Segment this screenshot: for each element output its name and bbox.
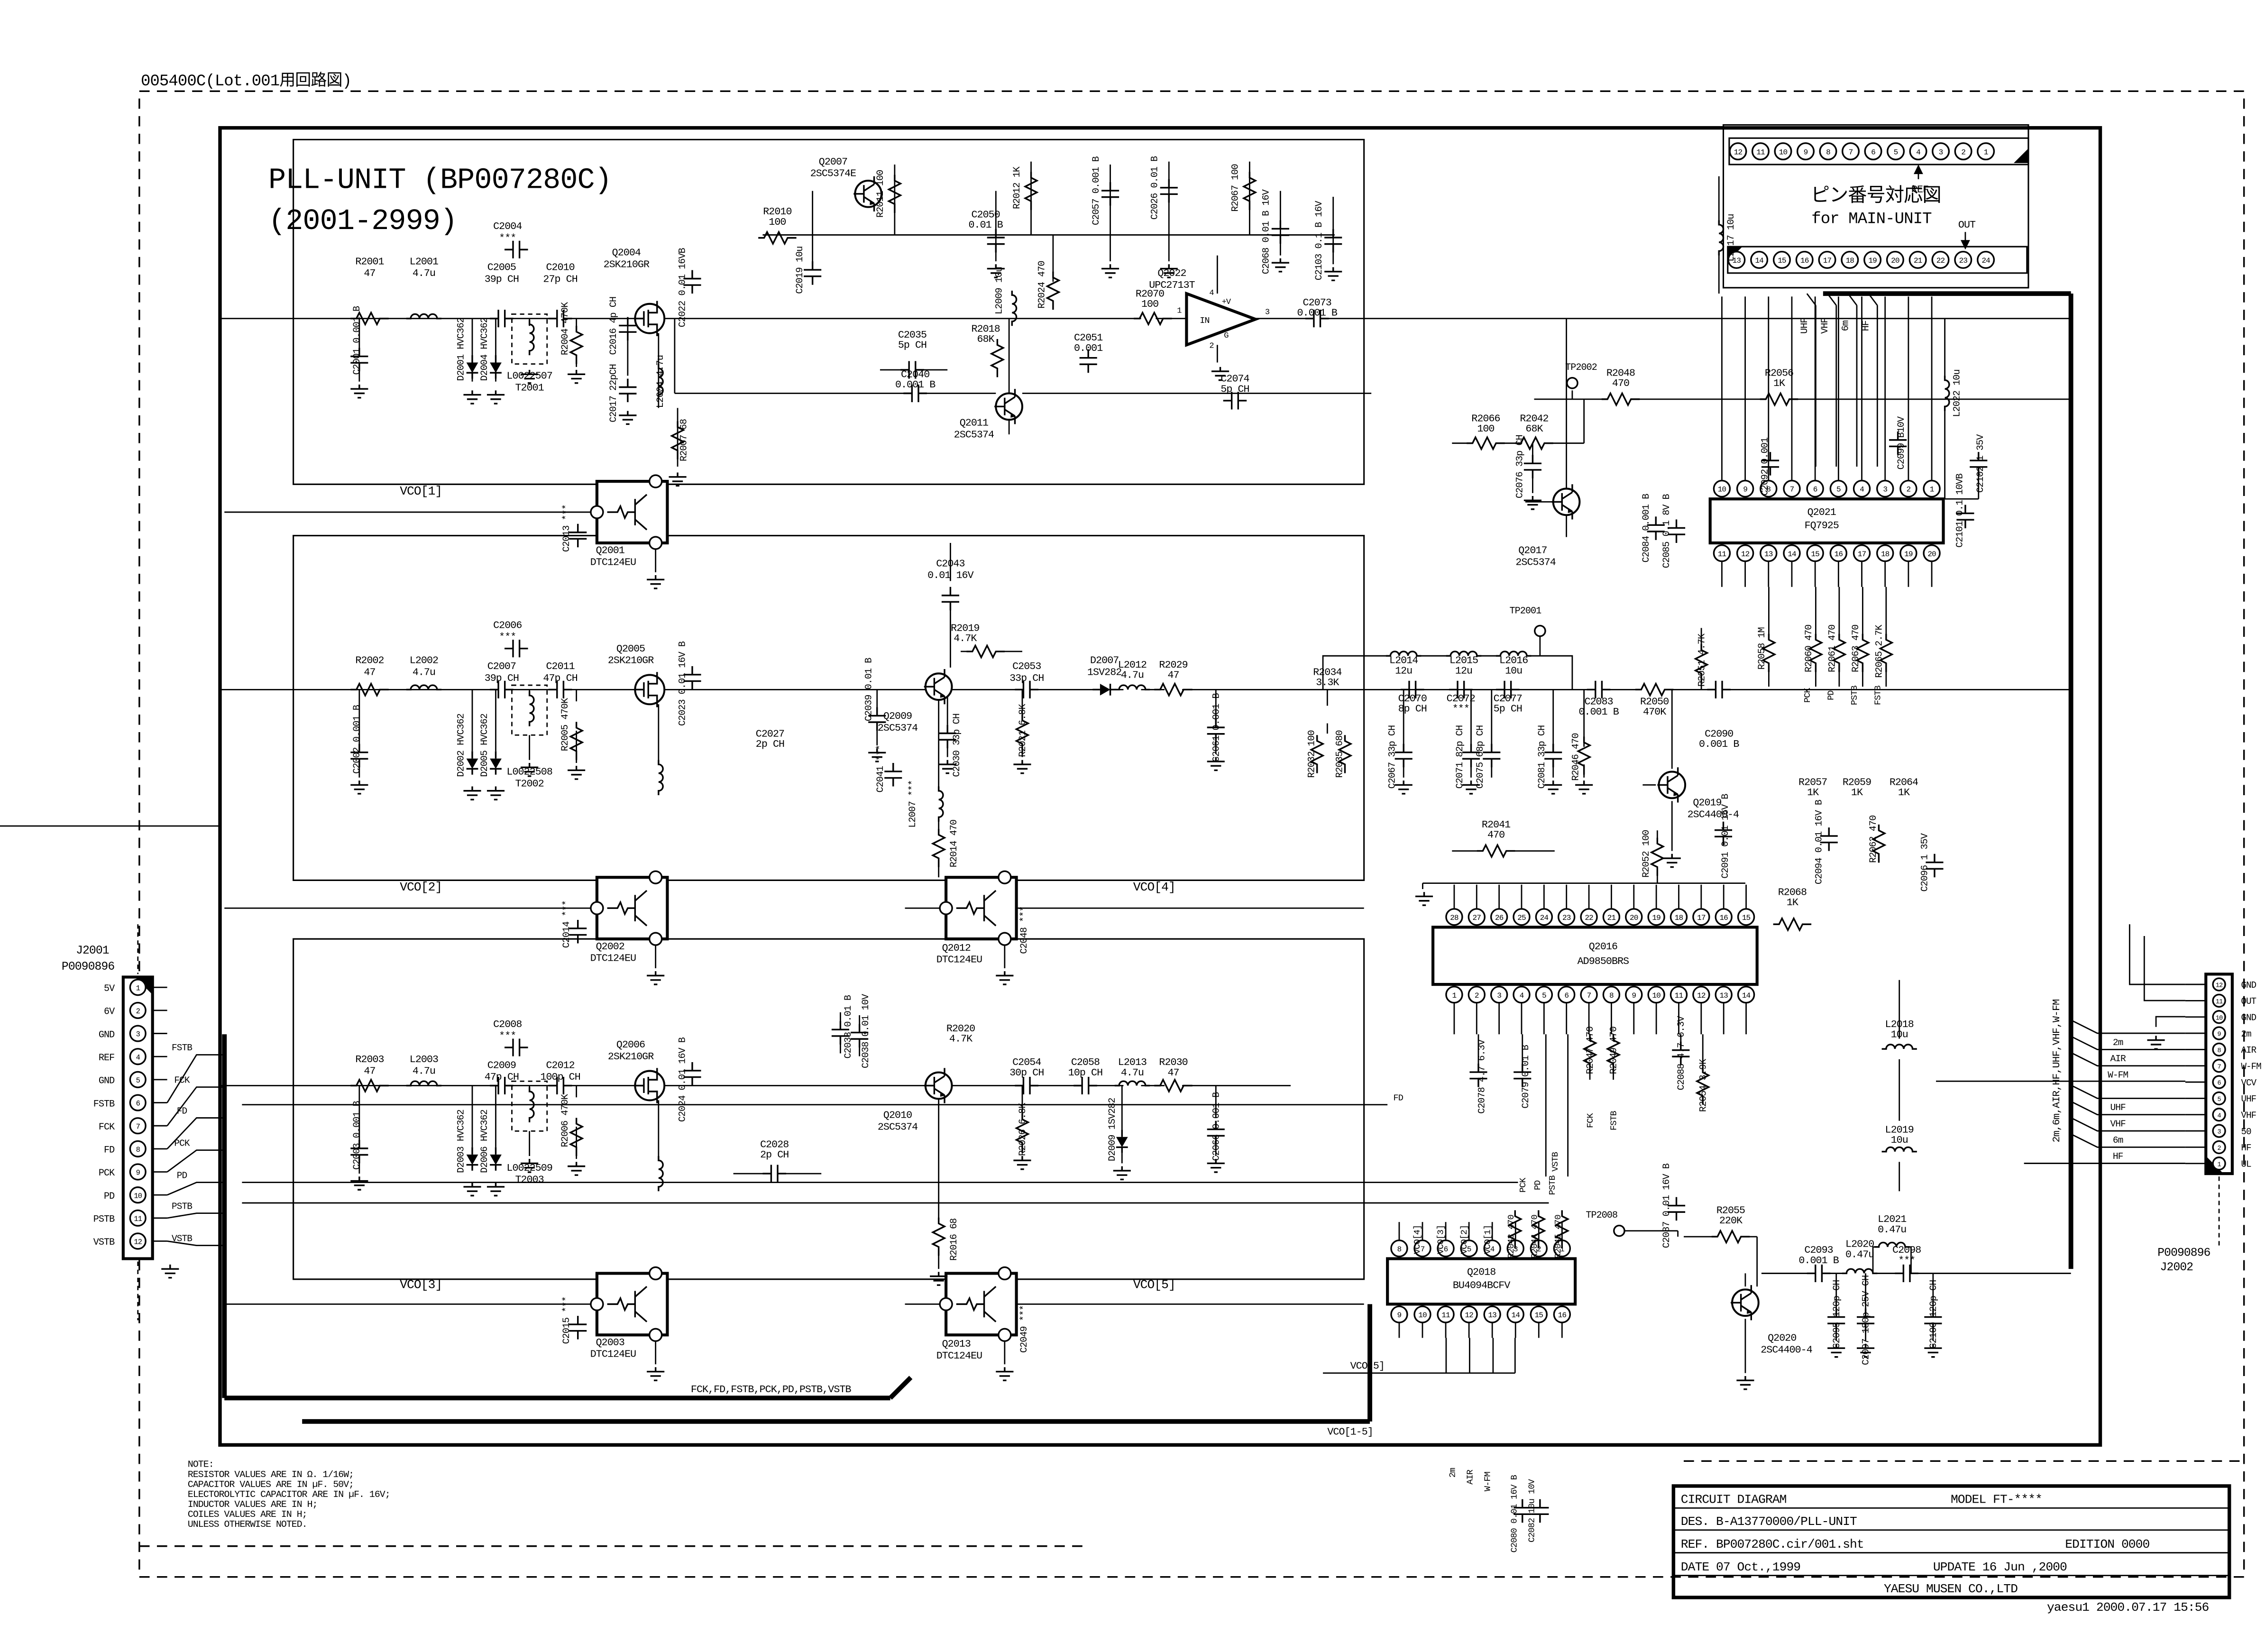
component-label: C2075 68p CH [1475, 725, 1486, 789]
component-label: 47 [364, 267, 375, 279]
pinmap-pin-number: 4 [1916, 148, 1920, 156]
ic-pin-number: 11 [1441, 1311, 1450, 1320]
component-label: 2 [1209, 342, 1213, 351]
component-label: R2021 6.8K [1018, 703, 1028, 757]
gnd-symbol [350, 1176, 368, 1190]
res-symbol [966, 646, 1004, 658]
ic-pin-number: 12 [1741, 550, 1750, 559]
component-label: C2033 0.01 B [843, 995, 854, 1058]
ind-symbol [1842, 1269, 1877, 1273]
connector-pin-label: W-FM [2241, 1062, 2261, 1072]
component-label: HF [1861, 321, 1872, 331]
component-label: Q2010 [883, 1110, 912, 1121]
ic-pin-number: 11 [1675, 991, 1683, 1000]
component-label: C2017 22pCH [608, 364, 619, 422]
component-label: PD [1533, 1180, 1543, 1190]
component-label: C2103 0.1 B 16V [1314, 201, 1325, 280]
component-label: 2m [1448, 1468, 1458, 1478]
component-label: VCO[1] [400, 484, 442, 498]
gnd-symbol [647, 1367, 664, 1380]
dtc-transistor-layer [591, 475, 1017, 1341]
component-label: C2067 33p CH [1387, 725, 1398, 789]
ic-pin-number: 14 [1511, 1311, 1520, 1320]
ic-pin-number: 7 [1790, 486, 1794, 494]
component-label: W-FM [1483, 1472, 1493, 1491]
component-label: 4.7u [1121, 1067, 1144, 1079]
connector-pin-label: UL [2241, 1159, 2251, 1170]
component-label: Q2002 [596, 941, 624, 953]
component-label: 39p CH [485, 672, 519, 684]
dio-symbol [467, 751, 478, 774]
component-label: 470 [1487, 829, 1505, 841]
component-label: C2014 *** [561, 900, 572, 948]
gnd-symbol [487, 786, 505, 799]
component-label: *** [1452, 703, 1469, 715]
gnd-symbol [1101, 264, 1119, 277]
component-label: 1K [1898, 787, 1910, 798]
ic-pin-number: 16 [1835, 550, 1843, 559]
component-label: TP2008 [1586, 1210, 1617, 1221]
pinmap-pin-number: 15 [1778, 257, 1786, 265]
connector-pin-label: 50 [2241, 1127, 2251, 1137]
component-label: 12u [1395, 665, 1412, 677]
component-label: 0.001 [1074, 342, 1102, 354]
ic-pin-number: 15 [1742, 914, 1751, 922]
component-label: C2022 0.01 16VB [678, 248, 688, 327]
component-label: R2065 2.7K [1874, 624, 1885, 678]
dtc124eu-block [940, 871, 1016, 945]
pinmap-pin-number: 11 [1756, 148, 1765, 156]
pinmap-pin-number: 22 [1936, 257, 1945, 265]
connector-pin-label: VHF [2241, 1111, 2256, 1121]
pinmap-pin-number: 23 [1959, 257, 1968, 265]
component-label: L2004 4.7u [655, 355, 666, 408]
component-label: R2051 4.7K [1697, 633, 1707, 687]
band-wire-label: 2m [2113, 1037, 2123, 1048]
dio-symbol [467, 1147, 478, 1170]
ic-pin-number: 6 [1564, 991, 1569, 1000]
component-label: Q2017 [1518, 545, 1547, 557]
component-label: L0022507 [506, 370, 552, 382]
component-label: C2010 [546, 262, 574, 274]
component-label: C2013 *** [561, 505, 572, 552]
connector-pin-label: GND [2241, 1013, 2256, 1023]
component-label: 2SK210GR [604, 258, 650, 270]
component-label: 100p CH [540, 1071, 580, 1083]
gnd-symbol [1113, 1166, 1131, 1180]
component-label: C2076 33p CH [1515, 435, 1526, 498]
component-label: C2039 0.01 B [863, 658, 874, 721]
component-label: R2032 100 [1307, 730, 1318, 778]
res-symbol [1047, 272, 1059, 310]
dtc124eu-block [940, 1267, 1016, 1341]
schematic-page: 005400C(Lot.001用回路図) PLL-UNIT (BP007280C… [0, 0, 2266, 1652]
component-label: Q2001 [596, 545, 624, 557]
component-label: 220K [1719, 1215, 1743, 1227]
component-label: R2058 1M [1757, 627, 1768, 670]
connector-pin-number: 10 [134, 1192, 142, 1200]
cap-symbol [1524, 455, 1541, 478]
component-label: 4.7u [413, 666, 435, 678]
gnd-symbol [647, 575, 664, 588]
ic-pin-number: 14 [1742, 991, 1751, 1000]
gnd-symbol [161, 1265, 179, 1278]
component-label: R2044 470 [1530, 1215, 1540, 1258]
connector-pin-label: HF [2241, 1143, 2251, 1153]
ic-pin-number: 3 [1497, 991, 1501, 1000]
ref-arrow-label: REF [1911, 184, 1928, 196]
connector-j2001: J2001P009089615V26V3GND4REF5GND6FSTB7FCK… [62, 944, 224, 1258]
component-label: 47p CH [485, 1071, 519, 1083]
component-label: 27p CH [543, 273, 577, 285]
component-label: FCK [1586, 1113, 1596, 1128]
gnd-symbol [1013, 1156, 1031, 1169]
component-label: C2008 [493, 1019, 522, 1030]
connector-pin-label: FCK [99, 1122, 115, 1133]
pinmap-pin-number: 1 [1984, 148, 1988, 156]
note-line: INDUCTOR VALUES ARE IN H; [188, 1499, 318, 1510]
pinmap-pin-number: 6 [1871, 148, 1875, 156]
ic-pin-number: 15 [1535, 1311, 1543, 1320]
connector-pin-number: 9 [136, 1169, 140, 1177]
cap-symbol [884, 763, 902, 786]
bus-wire-label: PSTB [172, 1201, 192, 1211]
ic-pin-number: 5 [1542, 991, 1546, 1000]
bus-wire-label: FCK [174, 1075, 190, 1085]
ic-pin-number: 10 [1718, 486, 1726, 494]
ic-pin-number: 5 [1836, 486, 1841, 494]
model: MODEL FT-**** [1951, 1493, 2042, 1507]
notes-block: NOTE: RESISTOR VALUES ARE IN Ω. 1/16W; C… [188, 1459, 390, 1530]
gnd-symbol [463, 390, 481, 404]
component-label: C2096 1 35V [1919, 833, 1930, 891]
component-label: 47 [1168, 1067, 1179, 1079]
component-label: R2054 3.9K [1698, 1058, 1709, 1112]
component-label: 0.001 B [1699, 738, 1739, 750]
pinmap-pin-number: 5 [1894, 148, 1898, 156]
component-label: 2SK210GR [608, 1051, 654, 1063]
ic-pin-number: 10 [1418, 1311, 1427, 1320]
component-label: 0.47u [1878, 1224, 1906, 1236]
connector-pin-label: PSTB [93, 1214, 115, 1225]
npn-symbol [1552, 484, 1580, 519]
ic-pin-number: 3 [1883, 486, 1887, 494]
component-label: DTC124EU [936, 954, 982, 966]
cap-symbol [1707, 681, 1730, 698]
component-label: 30p CH [1009, 1067, 1044, 1079]
connector-pin-number: 8 [136, 1146, 140, 1154]
pinmap-pin-number: 24 [1982, 257, 1990, 265]
component-label: C2102 1 35V [1975, 434, 1986, 493]
ic-pin-number: 1 [1930, 486, 1934, 494]
connector-pin-number: 9 [2217, 1031, 2221, 1038]
edition: EDITION 0000 [2065, 1537, 2149, 1551]
band-wire-label: 6m [2113, 1135, 2123, 1146]
component-label: DTC124EU [590, 953, 636, 964]
connector-pin-number: 10 [2216, 1015, 2223, 1022]
res-symbol [570, 326, 582, 364]
signal-buses [224, 294, 2071, 1422]
component-label: 2SC5374 [878, 722, 917, 734]
connector-name: J2002 [2160, 1261, 2193, 1274]
connector-pin-number: 5 [136, 1076, 140, 1085]
component-label: TP2002 [1565, 362, 1597, 373]
component-label: C2026 0.01 B [1150, 156, 1161, 220]
ind-symbol [1882, 1045, 1917, 1049]
gnd-symbol [350, 780, 368, 794]
component-label: 33p CH [1009, 672, 1044, 684]
ic-pin-number: 17 [1697, 914, 1706, 922]
gnd-symbol [463, 786, 481, 799]
component-label: 1K [1787, 897, 1798, 909]
component-label: C2081 33p CH [1537, 725, 1548, 789]
component-label: 470K [1643, 706, 1666, 718]
component-label: Q2020 [1768, 1332, 1796, 1344]
component-label: PD [1826, 690, 1836, 700]
connector-part: P0090896 [62, 960, 114, 973]
component-label: Q2009 [883, 710, 912, 722]
component-label: 47 [364, 666, 375, 678]
ic-pin-number: 13 [1764, 550, 1773, 559]
ic-pin-number: 17 [1858, 550, 1866, 559]
ic-pin-number: 21 [1607, 914, 1616, 922]
pinmap-pin-number: 16 [1800, 257, 1809, 265]
component-label: C2091 0.01 16V B [1720, 794, 1731, 879]
reference: REF. BP007280C.cir/001.sht [1681, 1537, 1864, 1551]
update: UPDATE 16 Jun ,2000 [1933, 1560, 2067, 1574]
component-label: VCO[5] [1133, 1277, 1175, 1292]
ic-pin-number: 11 [1718, 550, 1726, 559]
component-label: 0.001 B [1297, 307, 1337, 319]
pinmap-pin-number: 9 [1804, 148, 1808, 156]
component-label: C2048 *** [1019, 907, 1030, 954]
connector-pin-number: 12 [2216, 982, 2223, 990]
connector-part: P0090896 [2157, 1246, 2210, 1259]
ic-pin-number: 24 [1540, 914, 1549, 922]
designation: DES. B-A13770000/PLL-UNIT [1681, 1514, 1857, 1529]
component-label: C2061 0.001 B [1211, 693, 1222, 762]
component-label: *** [499, 631, 516, 643]
component-label: IN [1200, 316, 1209, 326]
component-label: 68K [1525, 423, 1543, 435]
ic-pin-number: 16 [1558, 1311, 1567, 1320]
gnd-symbol [619, 411, 636, 424]
connector-pin-number: 3 [136, 1030, 140, 1039]
title-block: CIRCUIT DIAGRAM MODEL FT-**** DES. B-A13… [1673, 1486, 2229, 1615]
connector-pin-label: PD [104, 1191, 115, 1202]
component-label: DTC124EU [936, 1350, 982, 1362]
component-label: 47 [1168, 670, 1179, 681]
component-label: VSTB [1550, 1152, 1560, 1172]
connector-pin-number: 2 [2217, 1145, 2221, 1152]
connector-pin-number: 3 [2217, 1129, 2221, 1136]
amp-q2022 [1186, 294, 1255, 345]
component-label: C2049 *** [1019, 1305, 1030, 1353]
ic-pin-number: 20 [1927, 550, 1936, 559]
component-label: 4.7u [413, 267, 435, 279]
component-label: 4 [1209, 289, 1214, 298]
component-label: PCK [1518, 1177, 1528, 1193]
ic-pin-number: 19 [1652, 914, 1661, 922]
component-label: 5p CH [1220, 383, 1249, 395]
component-label: 2p CH [756, 738, 784, 750]
component-label: C2004 [493, 220, 522, 232]
component-label: C2097 180p 25V CH [1861, 1276, 1872, 1365]
ind-symbol [1719, 220, 1723, 256]
component-label: Q2004 [612, 247, 641, 259]
note-line: NOTE: [188, 1459, 214, 1470]
component-label: R2016 68 [949, 1219, 960, 1261]
component-label: R2063 470 [1851, 625, 1862, 672]
band-wire-label: VHF [2110, 1119, 2126, 1129]
component-label: C2100 120p CH [1928, 1280, 1939, 1349]
npn-symbol [924, 1068, 952, 1103]
ic-pin-number: 23 [1562, 914, 1571, 922]
res-symbol [933, 829, 945, 867]
pinmap-pin-number: 2 [1961, 148, 1965, 156]
component-label: 0.01 16V [927, 569, 973, 581]
connector-pin-number: 12 [134, 1238, 142, 1247]
connector-pin-label: GND [99, 1029, 115, 1040]
ind-symbol [939, 786, 943, 821]
res-symbol [1467, 437, 1505, 449]
ind-symbol [659, 760, 663, 795]
res-symbol [1651, 838, 1663, 876]
component-label: VCO[1-5] [1327, 1426, 1373, 1438]
ic-pin-number: 15 [1811, 550, 1819, 559]
connector-pin-number: 11 [2216, 999, 2223, 1006]
dio-symbol [1092, 684, 1116, 696]
component-label: C2088 4.7 6.3V [1676, 1016, 1687, 1091]
gnd-symbol [996, 1367, 1013, 1380]
connector-pin-label: FD [104, 1145, 115, 1156]
connector-pin-number: 7 [136, 1122, 140, 1131]
ic-pin-number: 2 [1475, 991, 1479, 1000]
connector-pin-number: 1 [2217, 1161, 2221, 1168]
component-label: R2047 470 [1585, 1027, 1596, 1074]
ic-pin-number: 8 [1397, 1245, 1402, 1254]
ic-pin-number: 12 [1465, 1311, 1473, 1320]
cap-symbol [1807, 1265, 1830, 1282]
component-label: C2082 10u 10V [1527, 1478, 1537, 1542]
component-label: C2092 0.001 [1760, 437, 1771, 496]
connector-pin-label: GND [99, 1076, 115, 1087]
gnd-symbol [350, 385, 368, 398]
pinmap-pin-number: 20 [1891, 257, 1899, 265]
cap-symbol [619, 379, 636, 402]
section-dashed-line [139, 1461, 2244, 1546]
res-symbol [1477, 845, 1515, 857]
component-label: 12u [1455, 665, 1472, 677]
ic-pin-number: 27 [1473, 914, 1481, 922]
page-subtitle: (2001-2999) [268, 205, 457, 238]
component-label: DTC124EU [590, 556, 636, 568]
cap-symbol [1895, 1265, 1918, 1282]
component-label: 4.7K [949, 1033, 972, 1045]
ic-pin-number: 13 [1719, 991, 1728, 1000]
gnd-symbol [568, 766, 585, 779]
component-label: 100 [1477, 423, 1494, 435]
note-line: ELECTOROLYTIC CAPACITOR ARE IN µF. 16V; [188, 1489, 390, 1500]
labels-layer: VCO[1]VCO[2]VCO[3]VCO[4]VCO[5]R200147L20… [352, 156, 2063, 1553]
component-label: D2007 [1090, 655, 1119, 667]
component-label: PSTB [1850, 686, 1860, 706]
gnd-symbol [1324, 267, 1342, 280]
connector-pin-number: 7 [2217, 1064, 2221, 1071]
pinmap-pin-number: 10 [1779, 148, 1788, 156]
gnd-symbol [1524, 496, 1541, 509]
gnd-symbol [996, 971, 1013, 984]
component-label: Q2013 [942, 1338, 971, 1350]
ic-pin-number: 4 [1860, 486, 1864, 494]
component-label: C2094 0.01 16V B [1814, 799, 1825, 884]
ic-pin-number: 10 [1652, 991, 1661, 1000]
component-label: D2003 HVC362 [456, 1110, 467, 1173]
component-label: L2022 10u [1952, 369, 1963, 417]
ic-pin-number: 12 [1697, 991, 1706, 1000]
component-label: C2012 [546, 1059, 574, 1071]
bus-wire-label: FSTB [172, 1043, 192, 1053]
component-label: C2057 0.001 B [1091, 156, 1102, 225]
fet-symbol [635, 1068, 664, 1103]
band-wire-label: AIR [2110, 1054, 2126, 1064]
component-label: R2007 68 [679, 419, 690, 461]
bus-wire-label: FD [177, 1106, 187, 1116]
component-label: T2003 [515, 1174, 543, 1186]
component-label: R2043 470 [1506, 1215, 1516, 1258]
component-label: R2001 [355, 256, 384, 267]
component-label: 2SC4400-4 [1688, 808, 1739, 820]
res-symbol [933, 1218, 945, 1256]
ind-symbol [1945, 376, 1949, 411]
gnd-symbol [568, 1162, 585, 1175]
pinmap-pin-number: 19 [1868, 257, 1877, 265]
component-label: L2009 10u [994, 267, 1005, 314]
connector-pin-label: REF [99, 1053, 114, 1064]
lot-label: 005400C(Lot.001用回路図) [141, 71, 351, 91]
component-label: R2002 [355, 655, 384, 667]
component-label: R2006 470K [560, 1093, 571, 1147]
component-label: VCO[2] [1459, 1225, 1469, 1254]
component-label: R2052 100 [1641, 830, 1652, 878]
component-label: UHF [1799, 318, 1810, 334]
component-label: 8p CH [1398, 703, 1427, 715]
ic-pin-number: 20 [1630, 914, 1638, 922]
component-label: C2001 0.001 B [352, 306, 363, 375]
fet-symbol [635, 301, 664, 336]
component-label: FSTB [1609, 1111, 1619, 1131]
dtc124eu-block [591, 871, 667, 945]
ic-pin-number: 18 [1675, 914, 1683, 922]
component-label: Q2021 [1807, 506, 1836, 518]
company: YAESU MUSEN CO.,LTD [1884, 1582, 2018, 1596]
connector-pin-number: 6 [2217, 1080, 2221, 1087]
component-label: L2001 [410, 256, 438, 267]
component-label: VCO[3] [400, 1277, 442, 1292]
component-label: 1 [1177, 306, 1182, 315]
component-label: TP2001 [1510, 606, 1542, 616]
component-label: DTC124EU [590, 1349, 636, 1360]
component-label: VHF [1820, 318, 1831, 334]
connector-pin-number: 11 [134, 1215, 142, 1223]
component-label: C2079 0.01 B [1521, 1045, 1532, 1108]
dio-symbol [490, 355, 502, 378]
fet-symbol [635, 672, 664, 707]
component-label: 2SC5374 [878, 1121, 917, 1133]
connector-pin-number: 8 [2217, 1047, 2221, 1055]
component-label: C2041 *** [875, 745, 886, 792]
component-label: Q2018 [1467, 1267, 1495, 1278]
